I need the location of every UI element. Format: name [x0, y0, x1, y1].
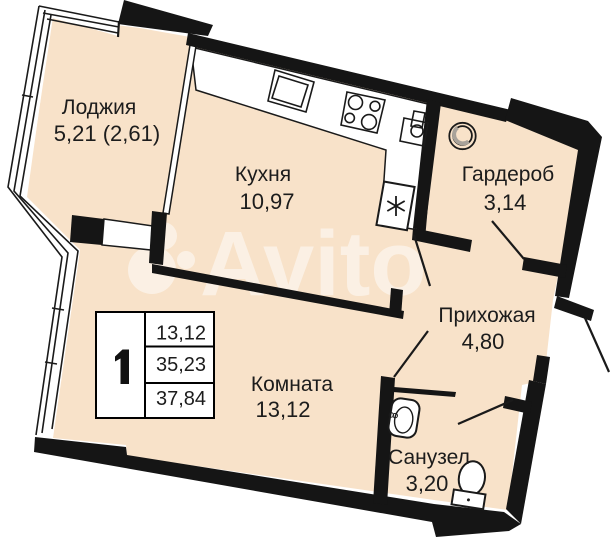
svg-text:13,12: 13,12 [255, 397, 310, 422]
svg-text:Гардероб: Гардероб [462, 163, 554, 186]
svg-text:5,21 (2,61): 5,21 (2,61) [54, 121, 160, 146]
svg-text:3,20: 3,20 [406, 471, 449, 496]
svg-text:Прихожая: Прихожая [438, 304, 535, 327]
svg-text:4,80: 4,80 [462, 329, 505, 354]
svg-text:13,12: 13,12 [156, 323, 206, 345]
svg-text:Кухня: Кухня [235, 163, 291, 186]
svg-text:10,97: 10,97 [239, 189, 294, 214]
svg-text:3,14: 3,14 [484, 190, 527, 215]
svg-text:35,23: 35,23 [156, 354, 206, 376]
svg-text:Санузел: Санузел [388, 446, 470, 469]
svg-text:Лоджия: Лоджия [62, 96, 136, 119]
svg-text:Комната: Комната [251, 373, 334, 396]
svg-text:37,84: 37,84 [156, 388, 206, 410]
